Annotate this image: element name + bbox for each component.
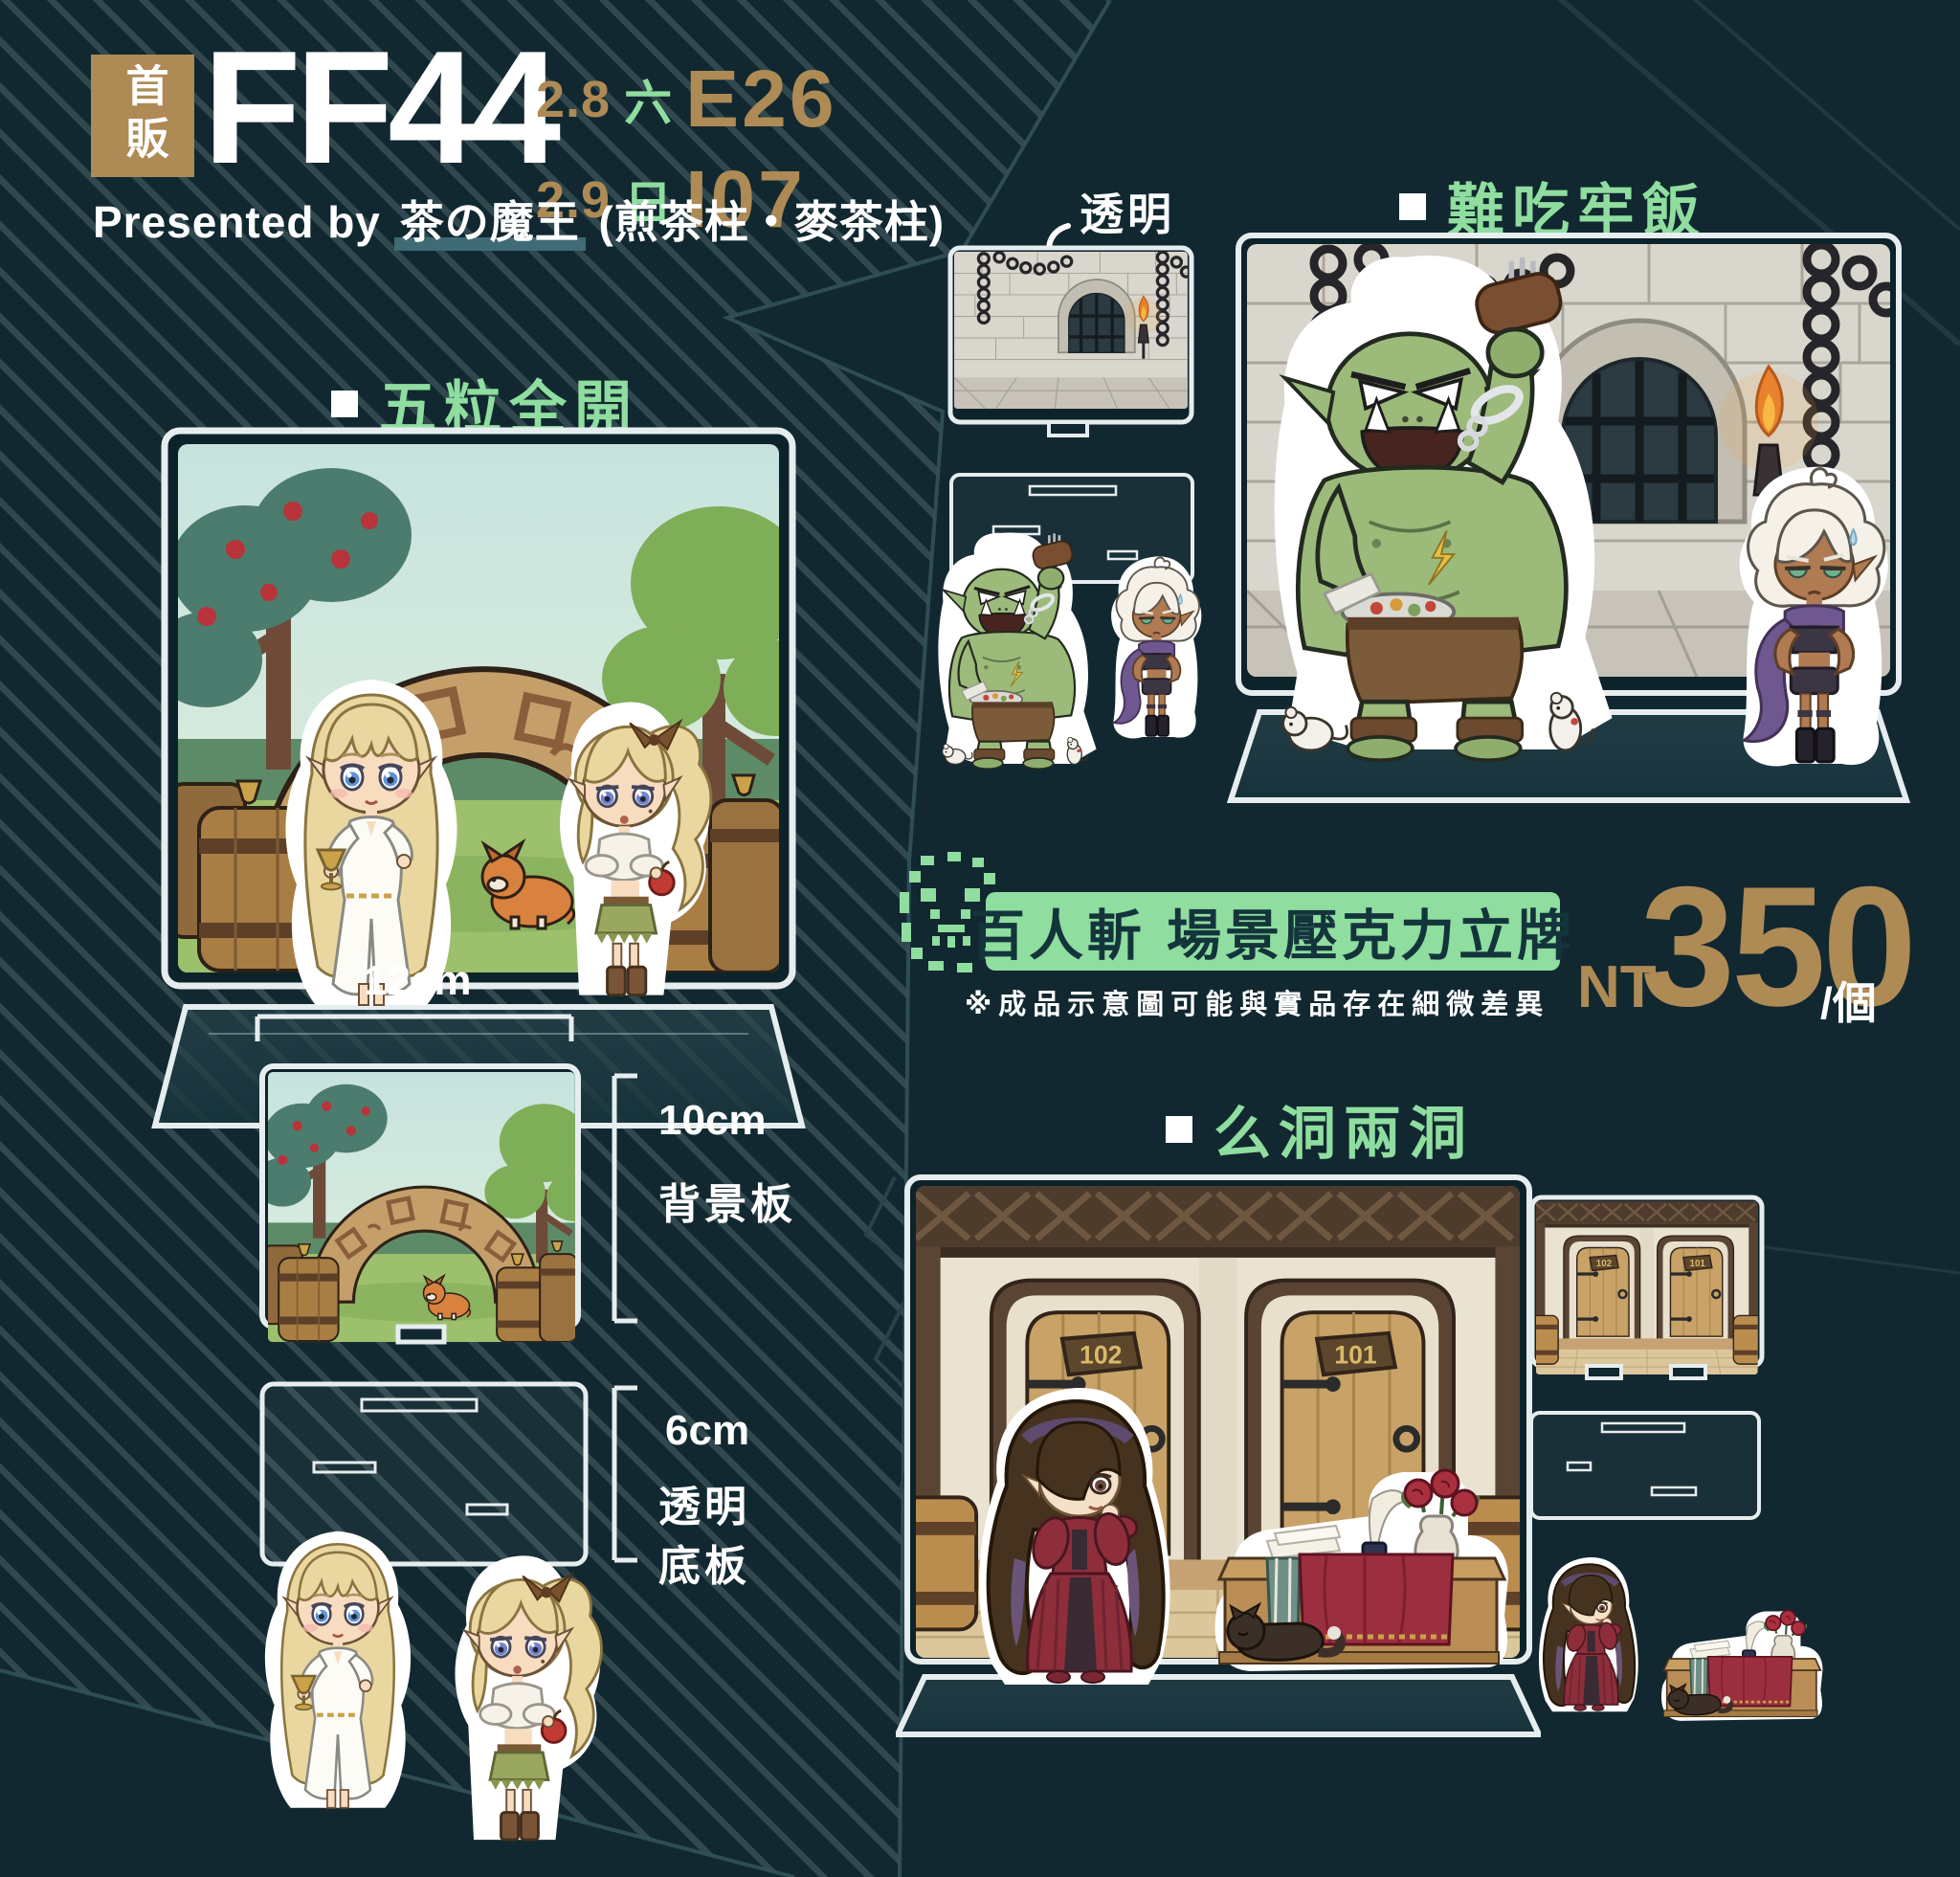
display-inn-main [896,1170,1541,1740]
backdrop-tab [1587,1366,1621,1378]
schedule-booth-1: E26 [685,53,836,145]
measure-width-bracket [254,1013,579,1051]
base-height-label: 6cm [665,1407,749,1455]
section-title-inn: 么洞兩洞 [1214,1087,1474,1171]
product-name: 場景壓克力立牌 [1167,892,1575,971]
disclaimer-text: ※成品示意圖可能與實品存在細微差異 [965,982,1549,1022]
presented-by-suffix: (煎茶柱・麥茶柱) [598,197,945,247]
measure-width-label: 12cm [364,957,472,1005]
schedule-day-1: 六 [624,65,672,134]
presented-by-line: Presented by 茶の魔王 (煎茶柱・麥茶柱) [93,188,945,251]
price-unit: /個 [1820,969,1877,1032]
badge-text: 首販 [117,63,169,168]
backdrop-height-label: 10cm [658,1097,767,1145]
square-bullet-icon [331,391,358,417]
square-bullet-icon [1166,1116,1192,1143]
display-prison-main [1227,228,1910,806]
backdrop-name-label: 背景板 [658,1170,796,1231]
measure-backdrop-bracket [607,1072,645,1327]
mini-standees-inn [1520,1551,1845,1761]
circle-name: 茶の魔王 [394,197,586,251]
schedule-date-1: 2.8 [536,70,611,129]
square-bullet-icon [1399,193,1426,220]
backdrop-tab [1671,1366,1705,1378]
backdrop-tab [1049,422,1087,436]
mini-base-inn [1527,1409,1763,1522]
base-name-line2: 底板 [658,1531,750,1593]
mini-standees-prison [923,525,1229,802]
poster-page: { "poster": { "badge": "首販", "event_code… [0,0,1960,1877]
series-name: 百人斬 [970,892,1146,971]
mini-backdrop-prison [946,243,1196,448]
schedule-row-1: 2.8 六 E26 [536,53,837,145]
product-title-pill: 百人斬 場景壓克力立牌 [986,892,1560,971]
first-sale-badge: 首販 [91,55,194,177]
acrylic-base-inn [898,1677,1539,1734]
backdrop-tab [398,1327,444,1342]
base-name-line1: 透明 [658,1472,750,1533]
presented-by-prefix: Presented by [93,197,381,247]
event-code: FF44 [203,27,555,188]
section-label-inn: 么洞兩洞 [1166,1087,1474,1171]
mini-backdrop-inn [1527,1193,1767,1388]
mini-standees-garden [241,1524,624,1854]
mini-backdrop-garden [256,1061,588,1357]
